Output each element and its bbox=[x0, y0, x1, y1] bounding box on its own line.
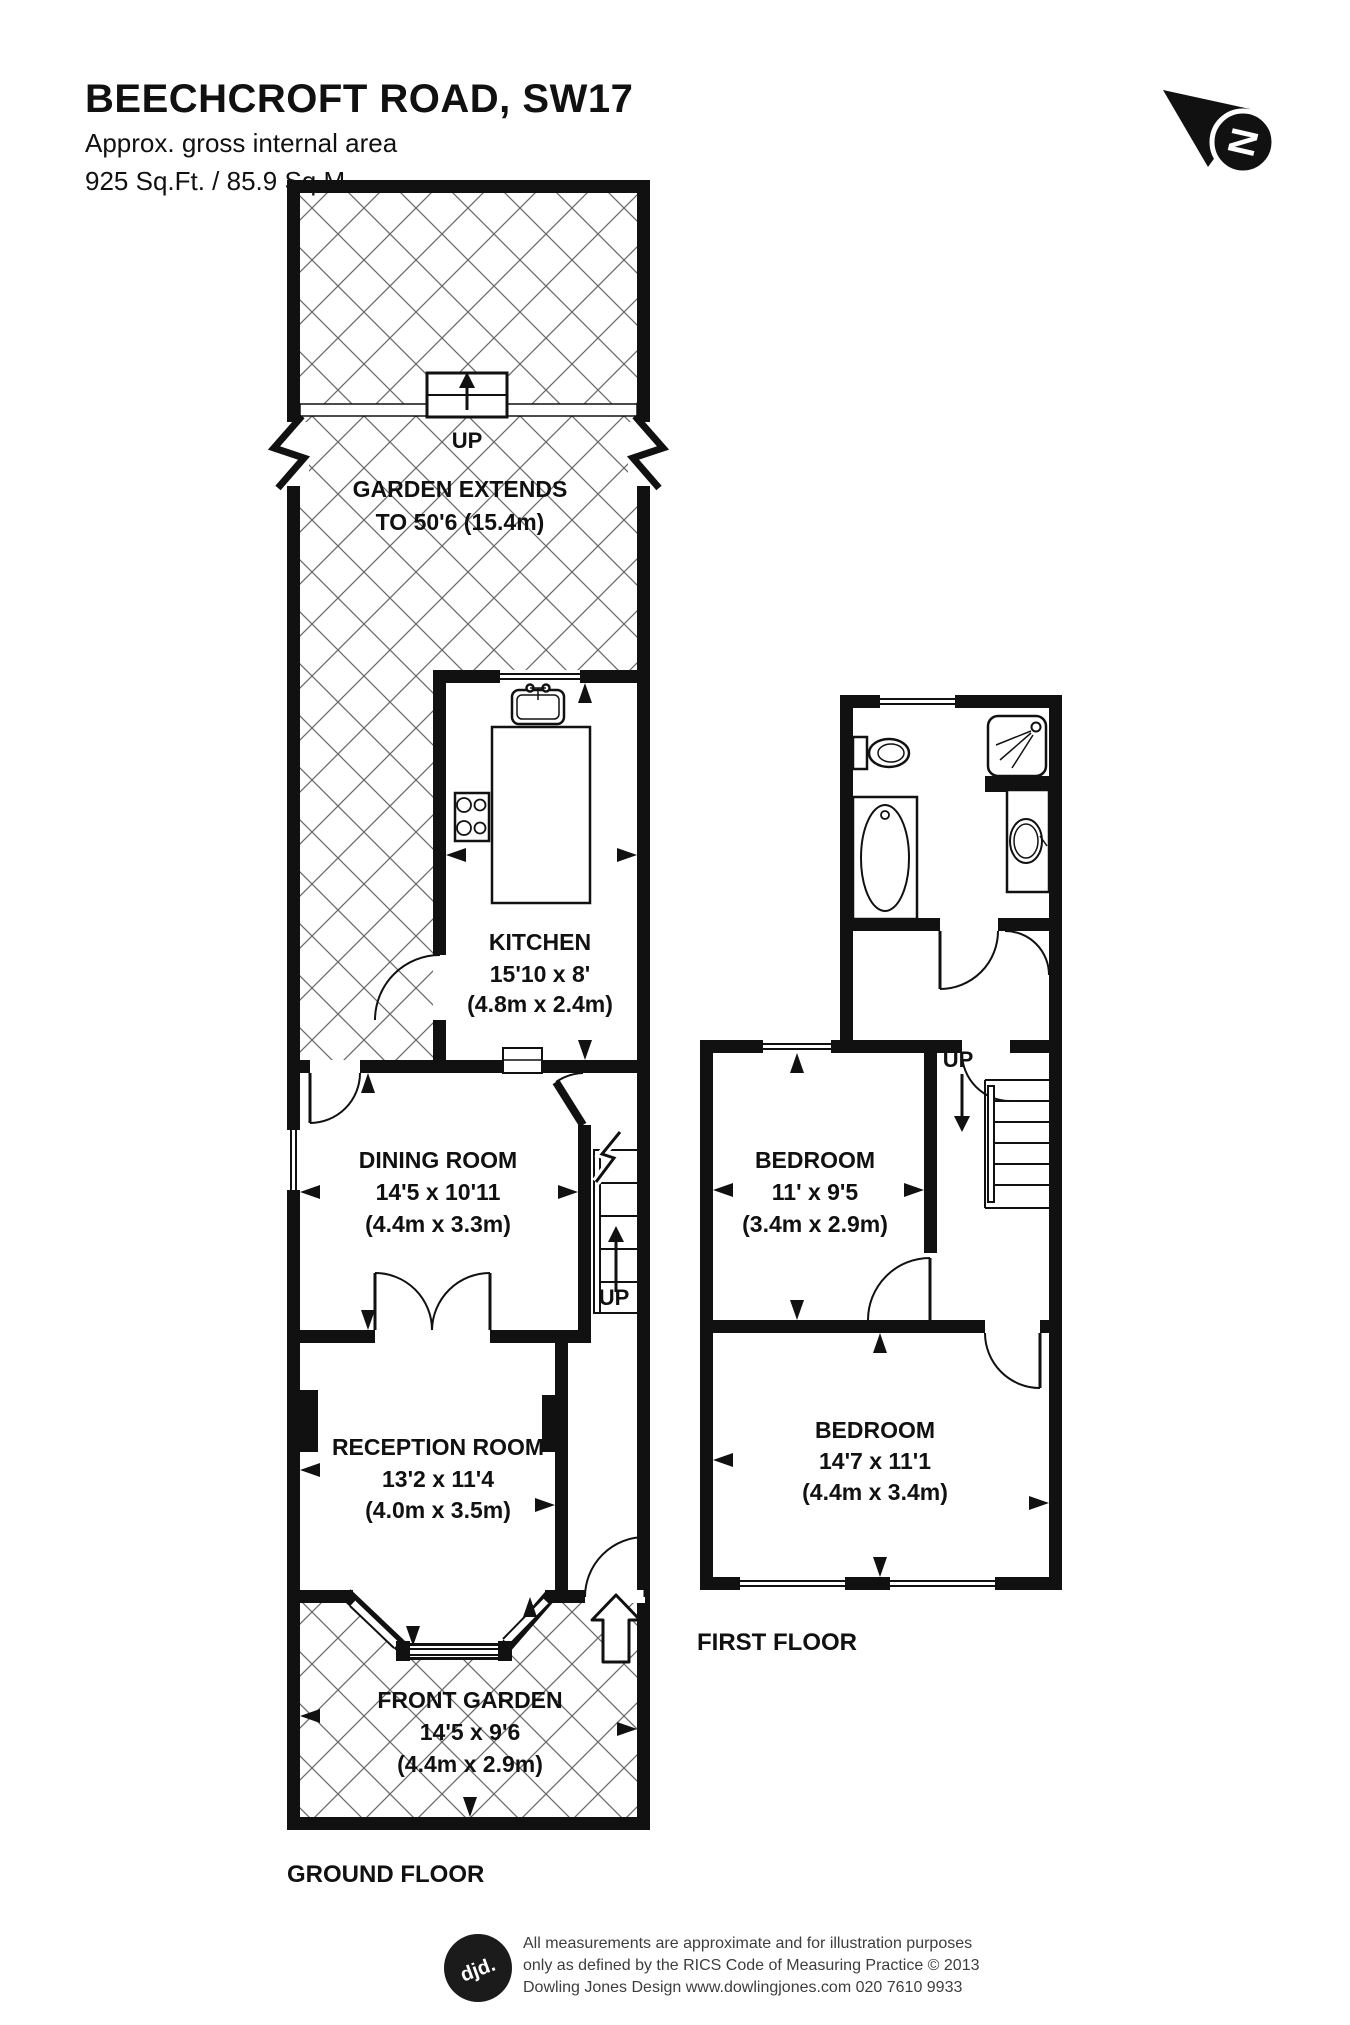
dining-window bbox=[287, 1130, 300, 1190]
front-wall-left bbox=[287, 1590, 353, 1603]
svg-text:15'10 x 8': 15'10 x 8' bbox=[490, 961, 590, 987]
outer-wall-bottom bbox=[287, 1817, 650, 1830]
kitchen-step bbox=[503, 1048, 542, 1073]
svg-text:BEDROOM: BEDROOM bbox=[755, 1147, 875, 1173]
floorplan-svg: BEECHCROFT ROAD, SW17 Approx. gross inte… bbox=[0, 0, 1350, 2025]
hob-icon bbox=[455, 793, 489, 841]
subtitle-area: Approx. gross internal area bbox=[85, 128, 398, 158]
svg-text:TO 50'6 (15.4m): TO 50'6 (15.4m) bbox=[376, 509, 545, 535]
first-wall-right bbox=[1049, 695, 1062, 1590]
svg-text:(4.8m x 2.4m): (4.8m x 2.4m) bbox=[467, 991, 613, 1017]
svg-text:DINING ROOM: DINING ROOM bbox=[359, 1147, 517, 1173]
break-line-left bbox=[274, 416, 309, 488]
chimney-right bbox=[542, 1395, 568, 1452]
break-line-right bbox=[628, 416, 663, 488]
basin-icon bbox=[1007, 790, 1049, 892]
garden-step bbox=[427, 372, 507, 417]
toilet-icon bbox=[853, 737, 909, 769]
svg-text:(4.4m x 3.4m): (4.4m x 3.4m) bbox=[802, 1479, 948, 1505]
svg-text:KITCHEN: KITCHEN bbox=[489, 929, 591, 955]
svg-text:GARDEN EXTENDS: GARDEN EXTENDS bbox=[353, 476, 568, 502]
stairs-up-label-first: UP bbox=[943, 1047, 974, 1072]
hall-partition-wall bbox=[578, 1125, 591, 1330]
outer-wall-top bbox=[287, 180, 650, 193]
svg-text:(4.4m x 2.9m): (4.4m x 2.9m) bbox=[397, 1751, 543, 1777]
bedroom1-partition bbox=[924, 1053, 937, 1253]
floorplan-page: BEECHCROFT ROAD, SW17 Approx. gross inte… bbox=[0, 0, 1350, 2025]
shower-icon bbox=[988, 716, 1046, 776]
bedroom2-window-left bbox=[740, 1577, 845, 1590]
ground-floor-label: GROUND FLOOR bbox=[287, 1861, 484, 1888]
svg-text:11' x 9'5: 11' x 9'5 bbox=[772, 1179, 859, 1205]
bedroom1-window bbox=[763, 1040, 831, 1053]
first-wall-left bbox=[700, 1040, 713, 1590]
bedroom2-label: BEDROOM 14'7 x 11'1 (4.4m x 3.4m) bbox=[802, 1417, 948, 1505]
kitchen-window bbox=[500, 670, 580, 683]
footer-line-1: All measurements are approximate and for… bbox=[523, 1935, 972, 1952]
sink-icon bbox=[512, 685, 564, 725]
footer-line-3: Dowling Jones Design www.dowlingjones.co… bbox=[523, 1979, 962, 1996]
bath-wall-left bbox=[840, 695, 853, 1040]
bedroom2-window-right bbox=[890, 1577, 995, 1590]
svg-text:14'5 x 9'6: 14'5 x 9'6 bbox=[420, 1719, 520, 1745]
north-arrow-icon: N bbox=[1163, 90, 1274, 173]
kitchen-counter bbox=[492, 727, 590, 903]
svg-text:13'2 x 11'4: 13'2 x 11'4 bbox=[382, 1466, 494, 1492]
svg-text:(4.0m x 3.5m): (4.0m x 3.5m) bbox=[365, 1497, 511, 1523]
reception-hall-wall bbox=[555, 1343, 568, 1590]
svg-text:RECEPTION ROOM: RECEPTION ROOM bbox=[332, 1434, 544, 1460]
page-title: BEECHCROFT ROAD, SW17 bbox=[85, 77, 633, 121]
ground-floor-plan: UP bbox=[274, 180, 663, 1888]
dining-room-label: DINING ROOM 14'5 x 10'11 (4.4m x 3.3m) bbox=[359, 1147, 517, 1237]
first-floor-plan: UP BEDROOM 11' x 9'5 (3.4m x 2.9m) BEDRO… bbox=[697, 695, 1062, 1656]
footer: djd. All measurements are approximate an… bbox=[444, 1934, 980, 2002]
garden-up-label: UP bbox=[452, 428, 483, 453]
svg-text:14'5 x 10'11: 14'5 x 10'11 bbox=[376, 1179, 501, 1205]
footer-line-2: only as defined by the RICS Code of Meas… bbox=[523, 1957, 980, 1974]
svg-text:FRONT GARDEN: FRONT GARDEN bbox=[377, 1687, 562, 1713]
svg-text:BEDROOM: BEDROOM bbox=[815, 1417, 935, 1443]
first-floor-label: FIRST FLOOR bbox=[697, 1629, 857, 1656]
bathtub-icon bbox=[853, 797, 917, 919]
chimney-left bbox=[287, 1390, 318, 1452]
svg-text:(3.4m x 2.9m): (3.4m x 2.9m) bbox=[742, 1211, 888, 1237]
stairs-up-label-ground: UP bbox=[599, 1285, 630, 1310]
svg-text:14'7 x 11'1: 14'7 x 11'1 bbox=[819, 1448, 931, 1474]
svg-text:(4.4m x 3.3m): (4.4m x 3.3m) bbox=[365, 1211, 511, 1237]
bathroom-window bbox=[880, 695, 955, 708]
header: BEECHCROFT ROAD, SW17 Approx. gross inte… bbox=[85, 77, 633, 196]
